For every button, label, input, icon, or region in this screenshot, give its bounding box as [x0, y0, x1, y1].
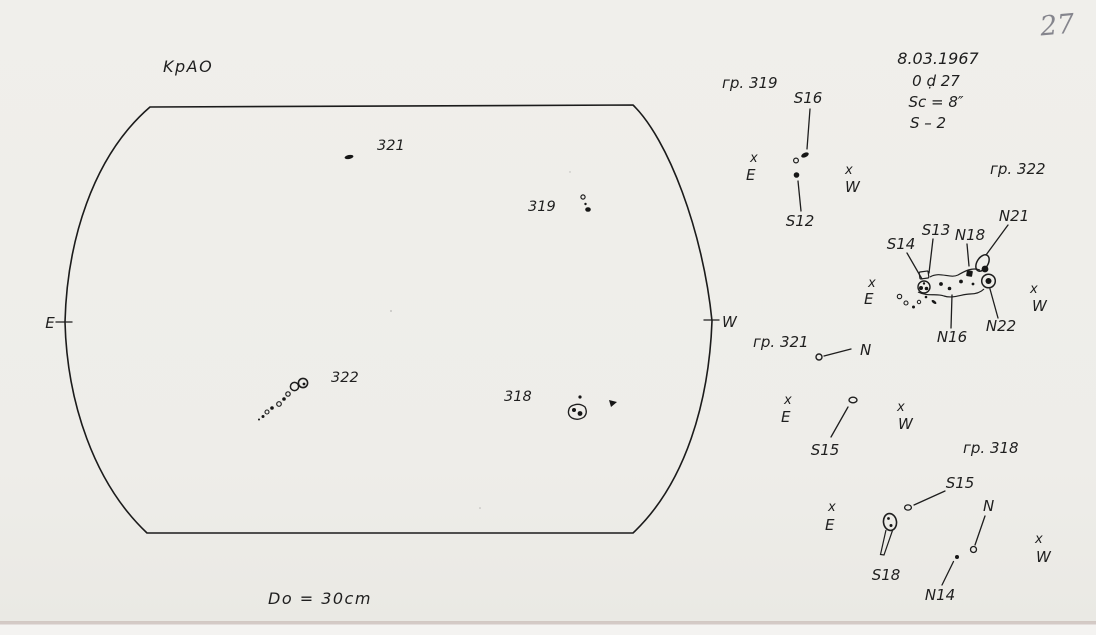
east-mark-label: E	[746, 166, 756, 184]
east-mark-x: x	[827, 500, 836, 515]
spot-label-n18: N18	[955, 226, 985, 244]
spot-label-s16: S16	[794, 89, 823, 107]
spot-label-n: N	[983, 497, 994, 515]
observation-sheet-scan: 27 KpAO 8.03.1967 0 ḍ 27 Sc = 8″ S – 2 E…	[0, 0, 1096, 635]
spot-label-s12: S12	[786, 212, 815, 230]
observation-time: 0 ḍ 27	[912, 72, 960, 90]
east-mark-x: x	[749, 151, 758, 166]
disk-west-label: W	[722, 313, 738, 331]
east-mark-label: E	[825, 516, 835, 534]
disk-group-321-label: 321	[377, 138, 405, 154]
disk-group-318-label: 318	[504, 389, 532, 405]
paper-bottom-edge-shadow	[0, 621, 1096, 625]
page-number: 27	[1038, 9, 1077, 43]
disk-group-322-label: 322	[331, 370, 359, 386]
west-mark-x: x	[1029, 282, 1038, 297]
sketch-319-title: гр. 319	[722, 74, 778, 92]
spot-label-s18: S18	[872, 566, 901, 584]
disk-east-label: E	[45, 314, 55, 332]
spot-label-s15: S15	[811, 441, 840, 459]
sunspot	[584, 203, 586, 205]
spot-label-s13: S13	[922, 221, 951, 239]
west-mark-x: x	[1034, 532, 1043, 547]
west-mark-label: W	[898, 415, 914, 433]
observatory-title: KpAO	[163, 57, 213, 76]
east-mark-label: E	[864, 290, 874, 308]
spot-label-n14: N14	[925, 586, 955, 604]
spot-label-n22: N22	[986, 317, 1016, 335]
sunspot	[887, 517, 890, 520]
aperture-note: Do = 30cm	[268, 589, 372, 608]
east-mark-label: E	[781, 408, 791, 426]
spot-label-n: N	[860, 341, 871, 359]
west-mark-x: x	[896, 400, 905, 415]
west-mark-label: W	[845, 178, 861, 196]
spot-label-n16: N16	[937, 328, 967, 346]
sunspot	[955, 555, 959, 559]
seeing-value: Sc = 8″	[908, 93, 963, 111]
west-mark-x: x	[844, 163, 853, 178]
spot-label-n21: N21	[999, 207, 1029, 225]
disk-group-319-label: 319	[528, 199, 556, 215]
sketch-322-title: гр. 322	[990, 160, 1046, 178]
east-mark-x: x	[867, 276, 876, 291]
quality-value: S – 2	[910, 114, 946, 132]
spot-label-s14: S14	[887, 235, 916, 253]
sketch-321-title: гр. 321	[753, 333, 809, 351]
scanner-background	[0, 625, 1096, 635]
west-mark-label: W	[1032, 297, 1048, 315]
west-mark-label: W	[1036, 548, 1052, 566]
spot-label-s15: S15	[946, 474, 975, 492]
sunspot	[794, 172, 800, 178]
sunspot	[585, 207, 591, 212]
sunspot	[890, 524, 893, 527]
sketch-318-title: гр. 318	[963, 439, 1019, 457]
east-mark-x: x	[783, 393, 792, 408]
observation-date: 8.03.1967	[897, 49, 979, 68]
